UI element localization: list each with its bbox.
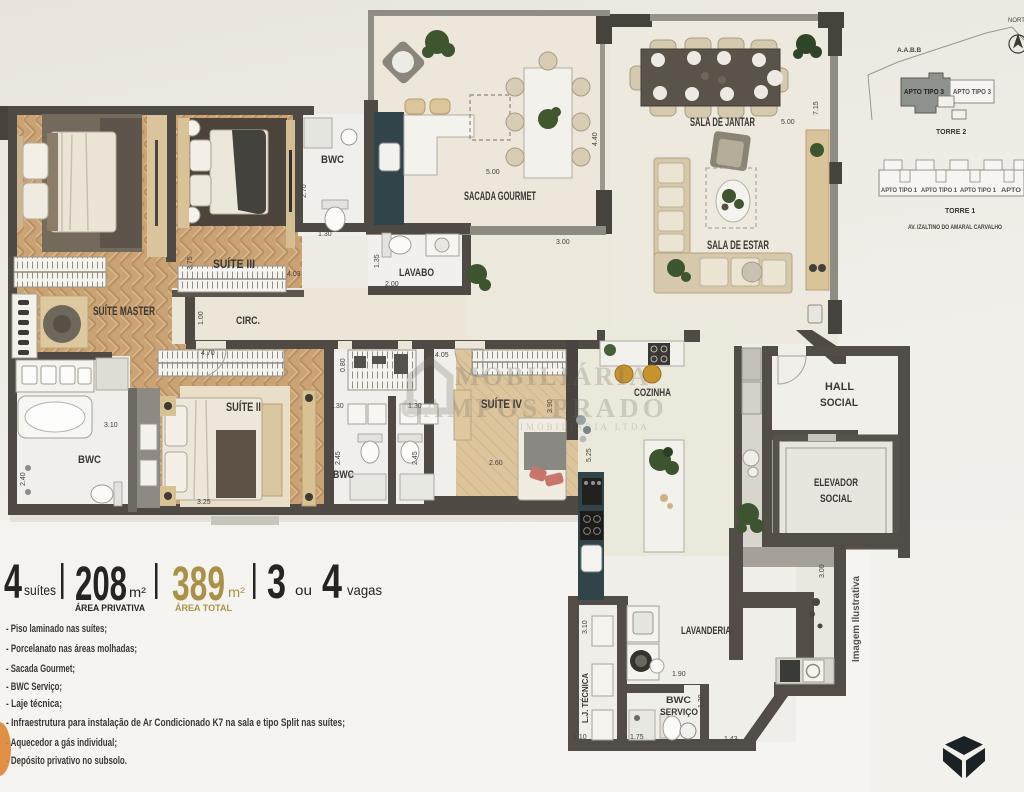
svg-text:vagas: vagas [347, 582, 382, 598]
svg-text:APTO TIPO 1: APTO TIPO 1 [921, 187, 957, 194]
svg-text:BWC: BWC [666, 695, 691, 706]
svg-text:LAVANDERIA: LAVANDERIA [681, 625, 731, 637]
svg-text:APTO TIPO 3: APTO TIPO 3 [953, 89, 991, 96]
svg-text:0.80: 0.80 [340, 358, 347, 372]
svg-text:4.40: 4.40 [592, 132, 599, 146]
svg-text:2.45: 2.45 [412, 451, 419, 465]
svg-text:1.75: 1.75 [630, 734, 644, 741]
svg-text:BWC: BWC [333, 469, 354, 481]
svg-text:1.35: 1.35 [374, 254, 381, 268]
svg-text:MOBILIÁRIA: MOBILIÁRIA [455, 362, 651, 391]
svg-text:1.30: 1.30 [698, 694, 705, 708]
svg-text:SOCIAL: SOCIAL [820, 493, 852, 505]
svg-text:ÁREA TOTAL: ÁREA TOTAL [175, 603, 232, 613]
svg-text:2.45: 2.45 [335, 451, 342, 465]
svg-text:2.40: 2.40 [20, 472, 27, 486]
svg-text:- Sacada Gourmet;: - Sacada Gourmet; [6, 663, 75, 675]
svg-text:2.60: 2.60 [489, 460, 503, 467]
svg-text:5.00: 5.00 [486, 169, 500, 176]
svg-text:AV. IZALTINO DO AMARAL CARVALH: AV. IZALTINO DO AMARAL CARVALHO [908, 224, 1002, 231]
svg-text:APTO TIPO 1: APTO TIPO 1 [881, 187, 917, 194]
svg-text:3.75: 3.75 [187, 256, 194, 270]
svg-text:SUÍTE MASTER: SUÍTE MASTER [93, 303, 155, 318]
svg-text:APTO: APTO [1001, 187, 1021, 194]
svg-text:3.00: 3.00 [819, 564, 826, 578]
svg-text:SALA DE JANTAR: SALA DE JANTAR [690, 115, 755, 129]
svg-text:TORRE 2: TORRE 2 [936, 129, 966, 136]
svg-text:CIRC.: CIRC. [236, 315, 260, 327]
svg-text:2.70: 2.70 [301, 184, 308, 198]
svg-text:4: 4 [4, 556, 22, 609]
svg-text:SOCIAL: SOCIAL [820, 397, 858, 409]
svg-text:A.A.B.B: A.A.B.B [897, 47, 922, 54]
svg-text:1.10: 1.10 [573, 734, 587, 741]
svg-text:7.15: 7.15 [813, 101, 820, 115]
svg-text:3.10: 3.10 [104, 422, 118, 429]
svg-text:3.25: 3.25 [197, 499, 211, 506]
svg-text:- Depósito privativo no subsol: - Depósito privativo no subsolo. [6, 755, 127, 767]
svg-text:BWC: BWC [321, 154, 344, 166]
svg-text:1.00: 1.00 [198, 311, 205, 325]
svg-text:- Aquecedor a gás individual;: - Aquecedor a gás individual; [6, 737, 117, 749]
svg-text:3.00: 3.00 [556, 239, 570, 246]
svg-text:1.43: 1.43 [724, 736, 738, 743]
svg-text:ELEVADOR: ELEVADOR [814, 477, 858, 489]
svg-text:SACADA GOURMET: SACADA GOURMET [464, 189, 536, 203]
svg-text:SUÍTE III: SUÍTE III [213, 256, 255, 271]
svg-text:4.70: 4.70 [201, 350, 215, 357]
svg-text:3.10: 3.10 [582, 620, 589, 634]
svg-text:- Laje técnica;: - Laje técnica; [6, 698, 62, 710]
svg-text:APTO TIPO 3: APTO TIPO 3 [904, 89, 944, 96]
svg-text:ou: ou [295, 582, 312, 598]
svg-text:- Porcelanato nas áreas molhad: - Porcelanato nas áreas molhadas; [6, 643, 137, 655]
svg-text:L.J. TÉCNICA: L.J. TÉCNICA [580, 673, 590, 723]
svg-text:NORTE: NORTE [1008, 18, 1024, 24]
svg-text:1.30: 1.30 [318, 231, 332, 238]
svg-text:- Piso laminado nas suítes;: - Piso laminado nas suítes; [6, 623, 107, 635]
svg-text:BWC: BWC [78, 454, 101, 466]
svg-text:5.25: 5.25 [586, 448, 593, 462]
svg-text:3: 3 [267, 556, 286, 609]
svg-text:Imagem Ilustrativa: Imagem Ilustrativa [851, 576, 862, 662]
svg-text:SUÍTE II: SUÍTE II [226, 399, 261, 414]
svg-text:4: 4 [322, 556, 342, 609]
svg-text:IMOBILIARIA LTDA: IMOBILIARIA LTDA [520, 422, 650, 432]
svg-text:- Infraestrutura para instalaç: - Infraestrutura para instalação de Ar C… [6, 717, 345, 729]
svg-text:TORRE 1: TORRE 1 [945, 208, 975, 215]
svg-text:m²: m² [228, 584, 245, 600]
svg-text:LAVABO: LAVABO [399, 267, 434, 279]
svg-text:4.05: 4.05 [435, 352, 449, 359]
svg-text:4.03: 4.03 [287, 271, 301, 278]
svg-text:SERVIÇO: SERVIÇO [660, 707, 698, 718]
svg-text:CAMPOS PRADO: CAMPOS PRADO [400, 393, 668, 423]
svg-text:ÁREA PRIVATIVA: ÁREA PRIVATIVA [75, 603, 145, 613]
svg-text:suítes: suítes [24, 582, 56, 598]
svg-text:1.30: 1.30 [330, 403, 344, 410]
svg-text:HALL: HALL [825, 381, 854, 393]
svg-text:APTO TIPO 1: APTO TIPO 1 [960, 187, 996, 194]
svg-text:m²: m² [129, 584, 146, 600]
svg-text:2.00: 2.00 [385, 281, 399, 288]
svg-text:5.00: 5.00 [781, 119, 795, 126]
svg-text:SALA DE ESTAR: SALA DE ESTAR [707, 238, 769, 252]
svg-text:1.90: 1.90 [672, 671, 686, 678]
svg-text:- BWC Serviço;: - BWC Serviço; [6, 681, 62, 693]
